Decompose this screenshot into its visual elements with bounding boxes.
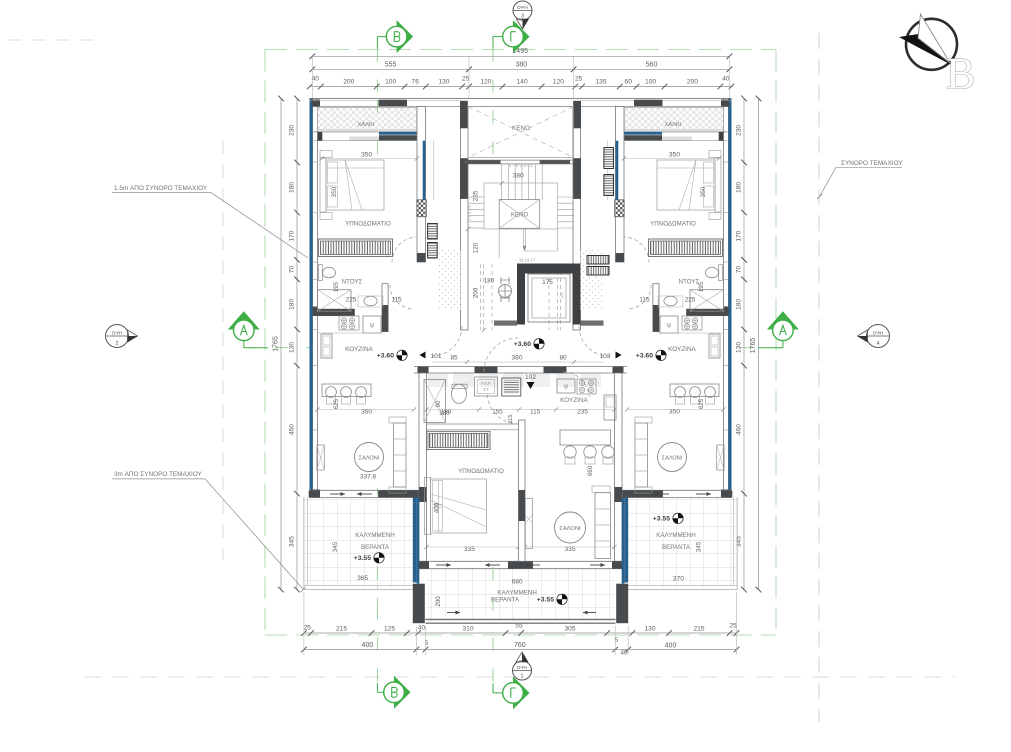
svg-text:40: 40 [418, 625, 426, 632]
svg-text:ΝΤΟΥΣ: ΝΤΟΥΣ [679, 279, 700, 286]
svg-text:ΚΕΝΟ: ΚΕΝΟ [511, 213, 528, 219]
svg-text:115: 115 [639, 297, 650, 304]
svg-text:1 2 3 4 5: 1 2 3 4 5 [467, 204, 472, 220]
svg-text:380: 380 [515, 61, 527, 68]
svg-text:18 19 17: 18 19 17 [519, 258, 536, 263]
svg-text:370: 370 [673, 576, 684, 583]
svg-text:120: 120 [480, 79, 491, 86]
svg-text:ΠΛΡ: ΠΛΡ [481, 381, 490, 386]
svg-text:ΒΕΡΑΝΤΑ: ΒΕΡΑΝΤΑ [662, 544, 691, 551]
svg-text:200: 200 [435, 596, 442, 607]
svg-text:102: 102 [525, 374, 536, 381]
svg-text:80: 80 [559, 355, 567, 362]
svg-text:460: 460 [289, 424, 296, 435]
svg-text:170: 170 [289, 230, 296, 241]
svg-text:+3.55: +3.55 [537, 597, 554, 604]
svg-text:ΚΕΝΟ: ΚΕΝΟ [512, 125, 530, 132]
svg-text:115: 115 [391, 297, 402, 304]
svg-text:ΧΑΛΚΙ: ΧΑΛΚΙ [664, 122, 681, 128]
svg-text:ψ: ψ [370, 323, 374, 329]
svg-text:ΟΨΗ: ΟΨΗ [873, 331, 884, 336]
svg-text:625: 625 [698, 398, 705, 409]
svg-text:400: 400 [362, 642, 374, 649]
svg-text:625: 625 [333, 398, 340, 409]
svg-text:230: 230 [736, 125, 743, 136]
svg-text:25: 25 [575, 76, 583, 83]
svg-text:101: 101 [430, 353, 441, 360]
svg-text:25: 25 [304, 625, 312, 632]
svg-text:ψ: ψ [564, 384, 568, 390]
svg-text:ΟΨΗ: ΟΨΗ [517, 665, 528, 670]
svg-text:ΚΑΛΥΜΜΕΝΗ: ΚΑΛΥΜΜΕΝΗ [355, 532, 394, 539]
svg-text:4: 4 [877, 341, 880, 347]
svg-text:560: 560 [646, 61, 658, 68]
svg-text:ΚΟΥΖΙΝΑ: ΚΟΥΖΙΝΑ [345, 346, 373, 353]
svg-text:ΒΕΡΑΝΤΑ: ΒΕΡΑΝΤΑ [361, 544, 390, 551]
svg-text:70: 70 [736, 266, 743, 274]
svg-text:85: 85 [450, 355, 458, 362]
svg-text:B: B [946, 49, 975, 98]
svg-text:130: 130 [644, 626, 655, 633]
svg-text:460: 460 [736, 424, 743, 435]
svg-text:ΚΑΛΥΜΜΕΝΗ: ΚΑΛΥΜΜΕΝΗ [656, 532, 695, 539]
svg-text:130: 130 [736, 342, 743, 353]
svg-text:ΥΠΝΟΔΩΜΑΤΙΟ: ΥΠΝΟΔΩΜΑΤΙΟ [458, 468, 504, 475]
svg-text:ΧΑΛΚΙ: ΧΑΛΚΙ [357, 122, 374, 128]
svg-text:40: 40 [621, 650, 628, 657]
svg-text:ΥΠΝΟΔΩΜΑΤΙΟ: ΥΠΝΟΔΩΜΑΤΙΟ [345, 221, 391, 228]
svg-text:400: 400 [434, 502, 441, 513]
svg-text:195: 195 [333, 281, 340, 292]
svg-text:350: 350 [669, 151, 680, 158]
svg-text:2: 2 [116, 341, 119, 347]
svg-text:345: 345 [696, 541, 703, 552]
svg-text:380: 380 [513, 172, 524, 179]
svg-text:350: 350 [700, 186, 707, 197]
svg-text:235: 235 [473, 190, 480, 201]
svg-text:3m ΑΠΟ ΣΥΝΟΡΟ ΤΕΜΑΧΙΟΥ: 3m ΑΠΟ ΣΥΝΟΡΟ ΤΕΜΑΧΙΟΥ [114, 471, 203, 478]
svg-text:680: 680 [512, 579, 523, 586]
svg-text:+3.60: +3.60 [377, 353, 394, 360]
svg-text:ΚΛ: ΚΛ [560, 292, 565, 298]
svg-text:215: 215 [693, 626, 704, 633]
svg-text:1: 1 [521, 674, 524, 680]
svg-text:120: 120 [473, 242, 480, 253]
svg-text:ΟΨΗ: ΟΨΗ [517, 5, 528, 10]
svg-text:225: 225 [346, 297, 357, 304]
svg-text:345: 345 [332, 541, 339, 552]
svg-text:+3.55: +3.55 [653, 516, 670, 523]
svg-text:180: 180 [289, 182, 296, 193]
svg-text:195: 195 [698, 281, 705, 292]
svg-text:ΚΟΥΖΙΝΑ: ΚΟΥΖΙΝΑ [668, 346, 696, 353]
svg-text:60: 60 [625, 79, 633, 86]
svg-text:ΝΤΟΥΣ: ΝΤΟΥΣ [342, 279, 363, 286]
svg-text:400: 400 [665, 643, 677, 650]
svg-text:1765: 1765 [273, 336, 280, 352]
svg-text:103: 103 [599, 353, 610, 360]
svg-text:345: 345 [289, 536, 296, 547]
svg-text:180: 180 [289, 299, 296, 310]
svg-text:ΥΠΝΟΔΩΜΑΤΙΟ: ΥΠΝΟΔΩΜΑΤΙΟ [650, 221, 696, 228]
svg-text:305: 305 [564, 626, 575, 633]
svg-text:230: 230 [289, 125, 296, 136]
svg-text:130: 130 [289, 342, 296, 353]
svg-text:ΚΑΛΥΜΜΕΝΗ: ΚΑΛΥΜΜΕΝΗ [497, 590, 536, 597]
svg-text:6 7 8 9 10 11: 6 7 8 9 10 11 [509, 163, 534, 168]
svg-text:76: 76 [412, 79, 420, 86]
svg-text:ΟΨΗ: ΟΨΗ [112, 331, 123, 336]
svg-text:40: 40 [722, 76, 730, 83]
svg-text:1.5m ΑΠΟ ΣΥΝΟΡΟ ΤΕΜΑΧΙΟΥ: 1.5m ΑΠΟ ΣΥΝΟΡΟ ΤΕΜΑΧΙΟΥ [114, 185, 208, 192]
svg-text:100: 100 [645, 79, 656, 86]
svg-text:225: 225 [685, 297, 696, 304]
svg-text:70: 70 [289, 266, 296, 274]
svg-text:660: 660 [587, 465, 594, 476]
svg-text:140: 140 [517, 79, 528, 86]
svg-text:365: 365 [357, 575, 368, 582]
svg-text:ψ: ψ [667, 323, 671, 329]
svg-text:ΚΟΥΖΙΝΑ: ΚΟΥΖΙΝΑ [560, 397, 588, 404]
svg-text:120: 120 [553, 79, 564, 86]
svg-text:ΣΥΝΟΡΟ ΤΕΜΑΧΙΟΥ: ΣΥΝΟΡΟ ΤΕΜΑΧΙΟΥ [841, 160, 903, 167]
svg-text:200: 200 [687, 79, 698, 86]
svg-text:175: 175 [542, 279, 553, 286]
svg-text:200: 200 [473, 287, 480, 298]
svg-text:180: 180 [736, 299, 743, 310]
svg-text:555: 555 [385, 61, 397, 68]
svg-text:180: 180 [736, 182, 743, 193]
svg-text:337.8: 337.8 [360, 474, 376, 481]
svg-text:ΣΤ: ΣΤ [483, 387, 489, 392]
svg-text:135: 135 [595, 79, 606, 86]
svg-text:170: 170 [736, 230, 743, 241]
svg-text:+3.55: +3.55 [354, 555, 371, 562]
svg-text:125: 125 [384, 626, 395, 633]
svg-text:310: 310 [462, 626, 473, 633]
svg-text:25: 25 [729, 623, 737, 630]
svg-text:ΣΑΛΟΝΙ: ΣΑΛΟΝΙ [359, 456, 380, 462]
svg-text:200: 200 [343, 79, 354, 86]
svg-text:+3.60: +3.60 [636, 353, 653, 360]
svg-text:100: 100 [385, 79, 396, 86]
svg-text:90: 90 [436, 400, 442, 407]
svg-text:130: 130 [438, 79, 449, 86]
svg-text:760: 760 [514, 642, 526, 649]
svg-text:180: 180 [484, 278, 495, 285]
svg-text:350: 350 [361, 151, 372, 158]
svg-text:+3.60: +3.60 [514, 341, 531, 348]
svg-text:215: 215 [336, 626, 347, 633]
svg-text:1765: 1765 [750, 338, 757, 354]
svg-text:345: 345 [736, 536, 743, 547]
svg-text:ΒΕΡΑΝΤΑ: ΒΕΡΑΝΤΑ [491, 597, 520, 604]
svg-text:25: 25 [462, 76, 470, 83]
svg-text:ΣΑΛΟΝΙ: ΣΑΛΟΝΙ [559, 526, 581, 532]
svg-text:350: 350 [331, 186, 338, 197]
svg-text:ΣΑΛΟΝΙ: ΣΑΛΟΝΙ [662, 456, 683, 462]
svg-text:380: 380 [511, 355, 522, 362]
svg-text:40: 40 [312, 76, 320, 83]
svg-text:115: 115 [508, 415, 514, 424]
